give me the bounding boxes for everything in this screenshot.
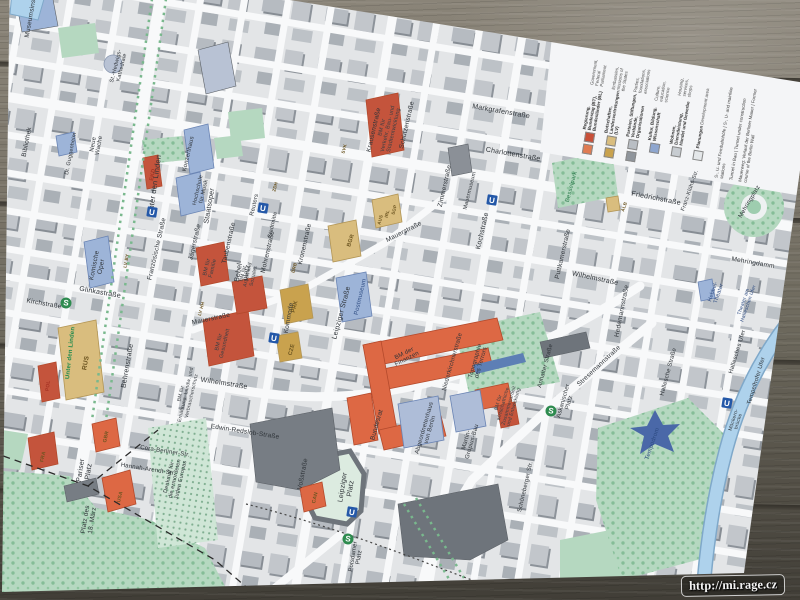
legend-swatch [670,146,682,158]
map-sheet: Regierung, Bundestag (BT), Bundesländer … [0,0,800,600]
watermark-url: http://mi.rage.cz [681,574,786,597]
legend-swatch [627,139,639,151]
u-bahn-badge: U [268,332,279,343]
legend-swatch [605,135,617,147]
legend-swatch [603,147,615,159]
u-bahn-badge: U [346,506,357,517]
legend-swatch [583,132,595,144]
u-bahn-badge: U [257,202,268,213]
legend-swatch [625,151,637,163]
u-bahn-badge: U [146,206,157,217]
legend-swatch [581,143,593,155]
legend-swatch [648,142,660,154]
u-bahn-badge: U [721,397,732,408]
photo-of-city-map: Regierung, Bundestag (BT), Bundesländer … [0,0,800,600]
u-bahn-badge: U [486,194,497,205]
legend-swatch [692,150,704,162]
